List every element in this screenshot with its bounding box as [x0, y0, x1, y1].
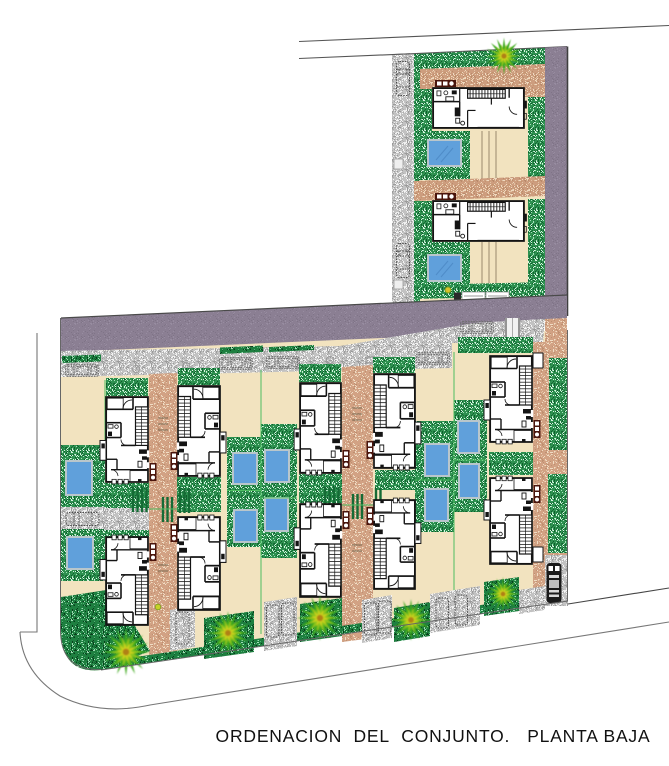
svg-text:ORDENACION DEL CONJUNTO. P: ORDENACION DEL CONJUNTO. PLANTA BAJA: [216, 726, 651, 746]
